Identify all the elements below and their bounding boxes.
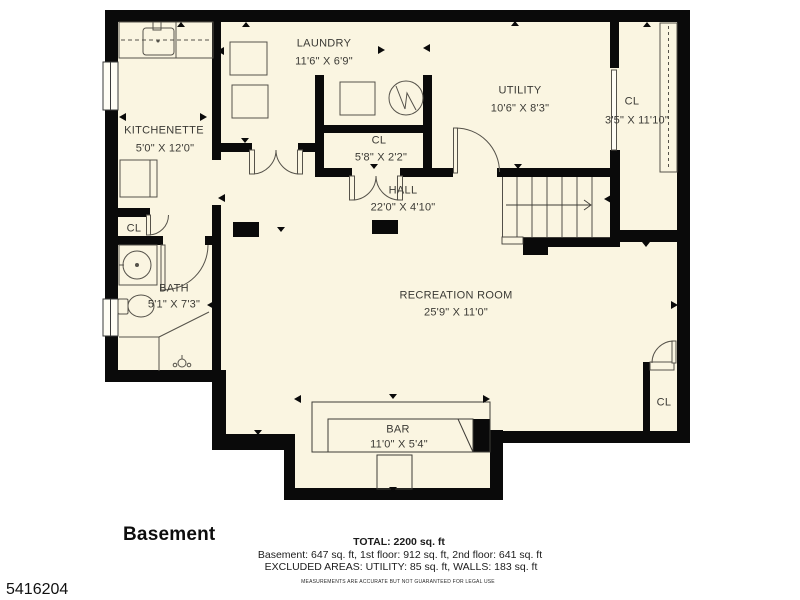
room-label-laundry: LAUNDRY — [297, 39, 351, 50]
room-label-recreation: RECREATION ROOM — [399, 291, 512, 302]
floor-title: Basement — [123, 524, 215, 546]
room-dims-kitchenette: 5'0" X 12'0" — [136, 144, 194, 155]
room-dims-laundry: 11'6" X 6'9" — [295, 57, 353, 68]
room-label-closet-nook: CL — [127, 224, 142, 235]
room-label-closet-rec: CL — [657, 398, 672, 409]
room-label-closet-right: CL — [625, 97, 640, 108]
support-column — [372, 220, 398, 234]
room-dims-hall: 22'0" X 4'10" — [371, 203, 436, 214]
floorplan-page: LAUNDRY 11'6" X 6'9" KITCHENETTE 5'0" X … — [0, 0, 800, 600]
total-area-text: TOTAL: 2200 sq. ft — [353, 536, 445, 548]
support-column — [233, 222, 259, 237]
room-dims-recreation: 25'9" X 11'0" — [424, 308, 488, 319]
room-dims-bar: 11'0" X 5'4" — [370, 440, 428, 451]
room-label-bath: BATH — [159, 284, 189, 295]
room-label-kitchenette: KITCHENETTE — [124, 126, 204, 137]
room-dims-closet-right: 3'5" X 11'10" — [605, 116, 669, 127]
listing-id: 5416204 — [6, 581, 68, 599]
room-label-hall: HALL — [389, 186, 418, 197]
room-dims-bath: 5'1" X 7'3" — [148, 300, 200, 311]
disclaimer-text: MEASUREMENTS ARE ACCURATE BUT NOT GUARAN… — [301, 579, 495, 585]
room-label-utility: UTILITY — [498, 86, 541, 97]
room-dims-closet-hall: 5'8" X 2'2" — [355, 153, 407, 164]
area-breakdown-text: Basement: 647 sq. ft, 1st floor: 912 sq.… — [258, 549, 542, 561]
room-dims-utility: 10'6" X 8'3" — [491, 104, 549, 115]
room-label-bar: BAR — [386, 425, 410, 436]
excluded-areas-text: EXCLUDED AREAS: UTILITY: 85 sq. ft, WALL… — [265, 561, 538, 573]
room-label-closet-hall: CL — [372, 136, 387, 147]
closet-door-leaf — [612, 70, 617, 150]
